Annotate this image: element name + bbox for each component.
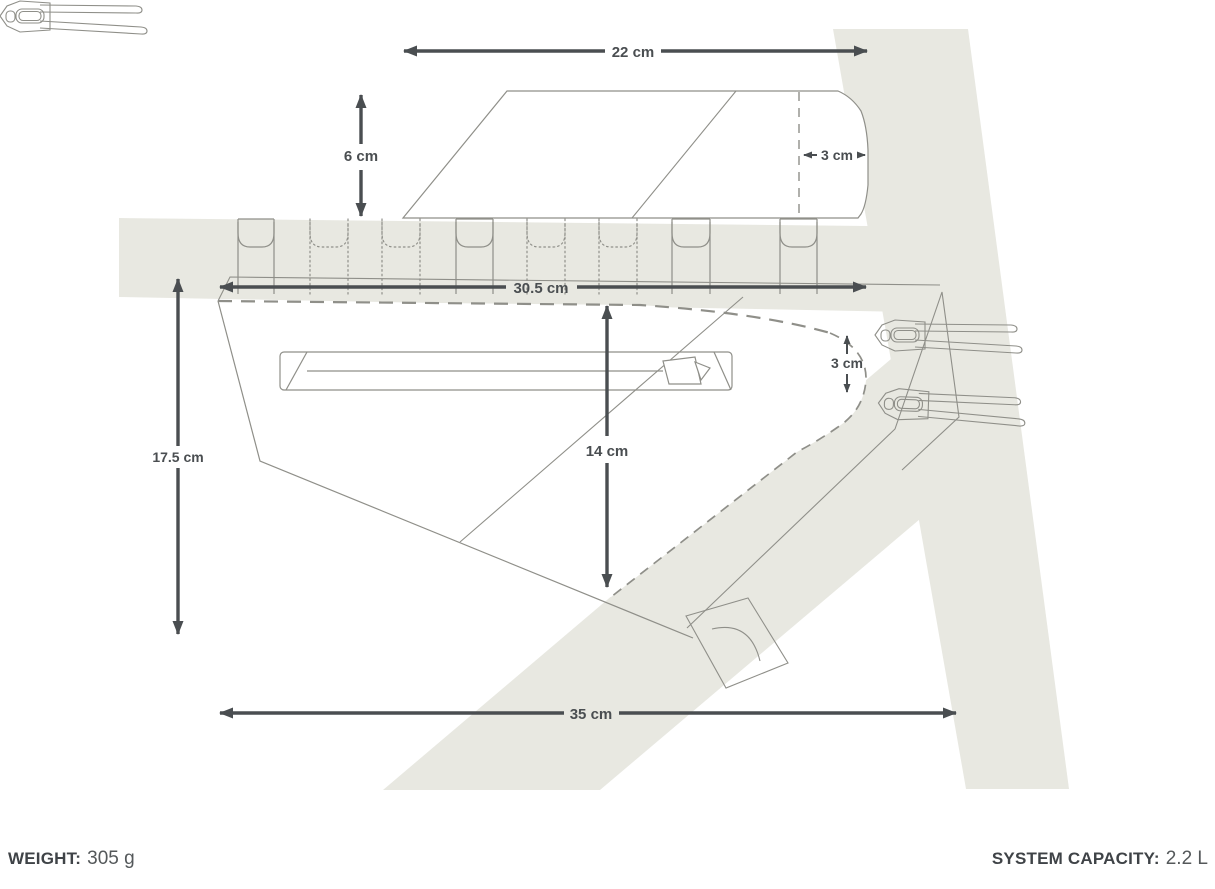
capacity-value: 2.2 L bbox=[1166, 848, 1208, 869]
dimension-label: 3 cm bbox=[831, 355, 863, 371]
dimension-label: 14 cm bbox=[586, 443, 629, 460]
buckle-slot-inner bbox=[19, 12, 41, 21]
dimension-frame-bag-front-height: 17.5 cm bbox=[152, 279, 203, 634]
weight-value: 305 g bbox=[87, 848, 135, 869]
buckle-body bbox=[0, 1, 50, 32]
buckle-nub bbox=[6, 11, 15, 22]
capacity-spec: SYSTEM CAPACITY:2.2 L bbox=[992, 848, 1208, 870]
top-bag-outline bbox=[403, 91, 868, 218]
dimension-label: 30.5 cm bbox=[513, 280, 568, 297]
capacity-label: SYSTEM CAPACITY: bbox=[992, 849, 1160, 868]
dimension-top-bag-height: 6 cm bbox=[344, 95, 378, 216]
buckle-strap-lower bbox=[40, 21, 147, 34]
top-tube bbox=[119, 218, 965, 313]
dimension-label: 3 cm bbox=[821, 147, 853, 163]
weight-spec: WEIGHT:305 g bbox=[8, 848, 135, 870]
dimension-label: 6 cm bbox=[344, 148, 378, 165]
dimension-label: 22 cm bbox=[612, 44, 655, 61]
top-tube-bag bbox=[403, 91, 868, 218]
dimension-label: 35 cm bbox=[570, 706, 613, 723]
dimension-top-bag-length: 22 cm bbox=[404, 44, 867, 61]
dimension-label: 17.5 cm bbox=[152, 449, 203, 465]
weight-label: WEIGHT: bbox=[8, 849, 81, 868]
dimension-frame-bag-bottom-length: 35 cm bbox=[220, 706, 956, 723]
dimension-diagram: 22 cm 6 cm 3 cm 30.5 cm 14 cm bbox=[0, 0, 1215, 889]
zipper-pull bbox=[663, 357, 701, 384]
buckle-strap-upper bbox=[40, 5, 142, 13]
buckle-hardware bbox=[0, 1, 147, 34]
